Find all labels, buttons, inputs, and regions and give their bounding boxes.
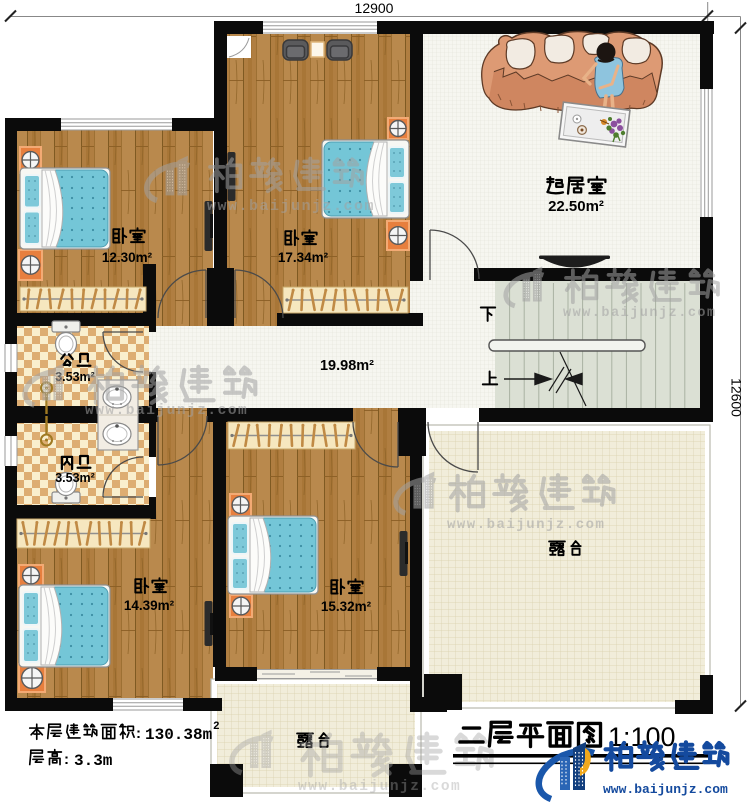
svg-text:www.baijunjz.com: www.baijunjz.com — [85, 403, 248, 419]
svg-text:17.34m²: 17.34m² — [278, 250, 329, 265]
svg-text:19.98m²: 19.98m² — [320, 358, 374, 374]
svg-text:3.53m²: 3.53m² — [55, 471, 95, 485]
svg-text:22.50m²: 22.50m² — [548, 198, 604, 215]
svg-text:www.baijunjz.com: www.baijunjz.com — [603, 782, 728, 797]
svg-text:2: 2 — [213, 721, 220, 733]
svg-text:12600: 12600 — [729, 378, 745, 417]
svg-text:www.baijunjz.com: www.baijunjz.com — [298, 779, 461, 795]
svg-text:14.39m²: 14.39m² — [124, 598, 175, 613]
svg-text:www.baijunjz.com: www.baijunjz.com — [207, 198, 375, 215]
svg-text:3.3m: 3.3m — [74, 752, 113, 770]
svg-text::: : — [136, 725, 141, 742]
svg-text::: : — [64, 751, 69, 768]
svg-text:www.baijunjz.com: www.baijunjz.com — [563, 306, 717, 321]
svg-text:15.32m²: 15.32m² — [321, 599, 372, 614]
svg-text:12.30m²: 12.30m² — [102, 250, 153, 265]
svg-text:12900: 12900 — [355, 0, 394, 16]
svg-text:www.baijunjz.com: www.baijunjz.com — [447, 517, 605, 533]
svg-text:130.38m: 130.38m — [145, 726, 213, 744]
